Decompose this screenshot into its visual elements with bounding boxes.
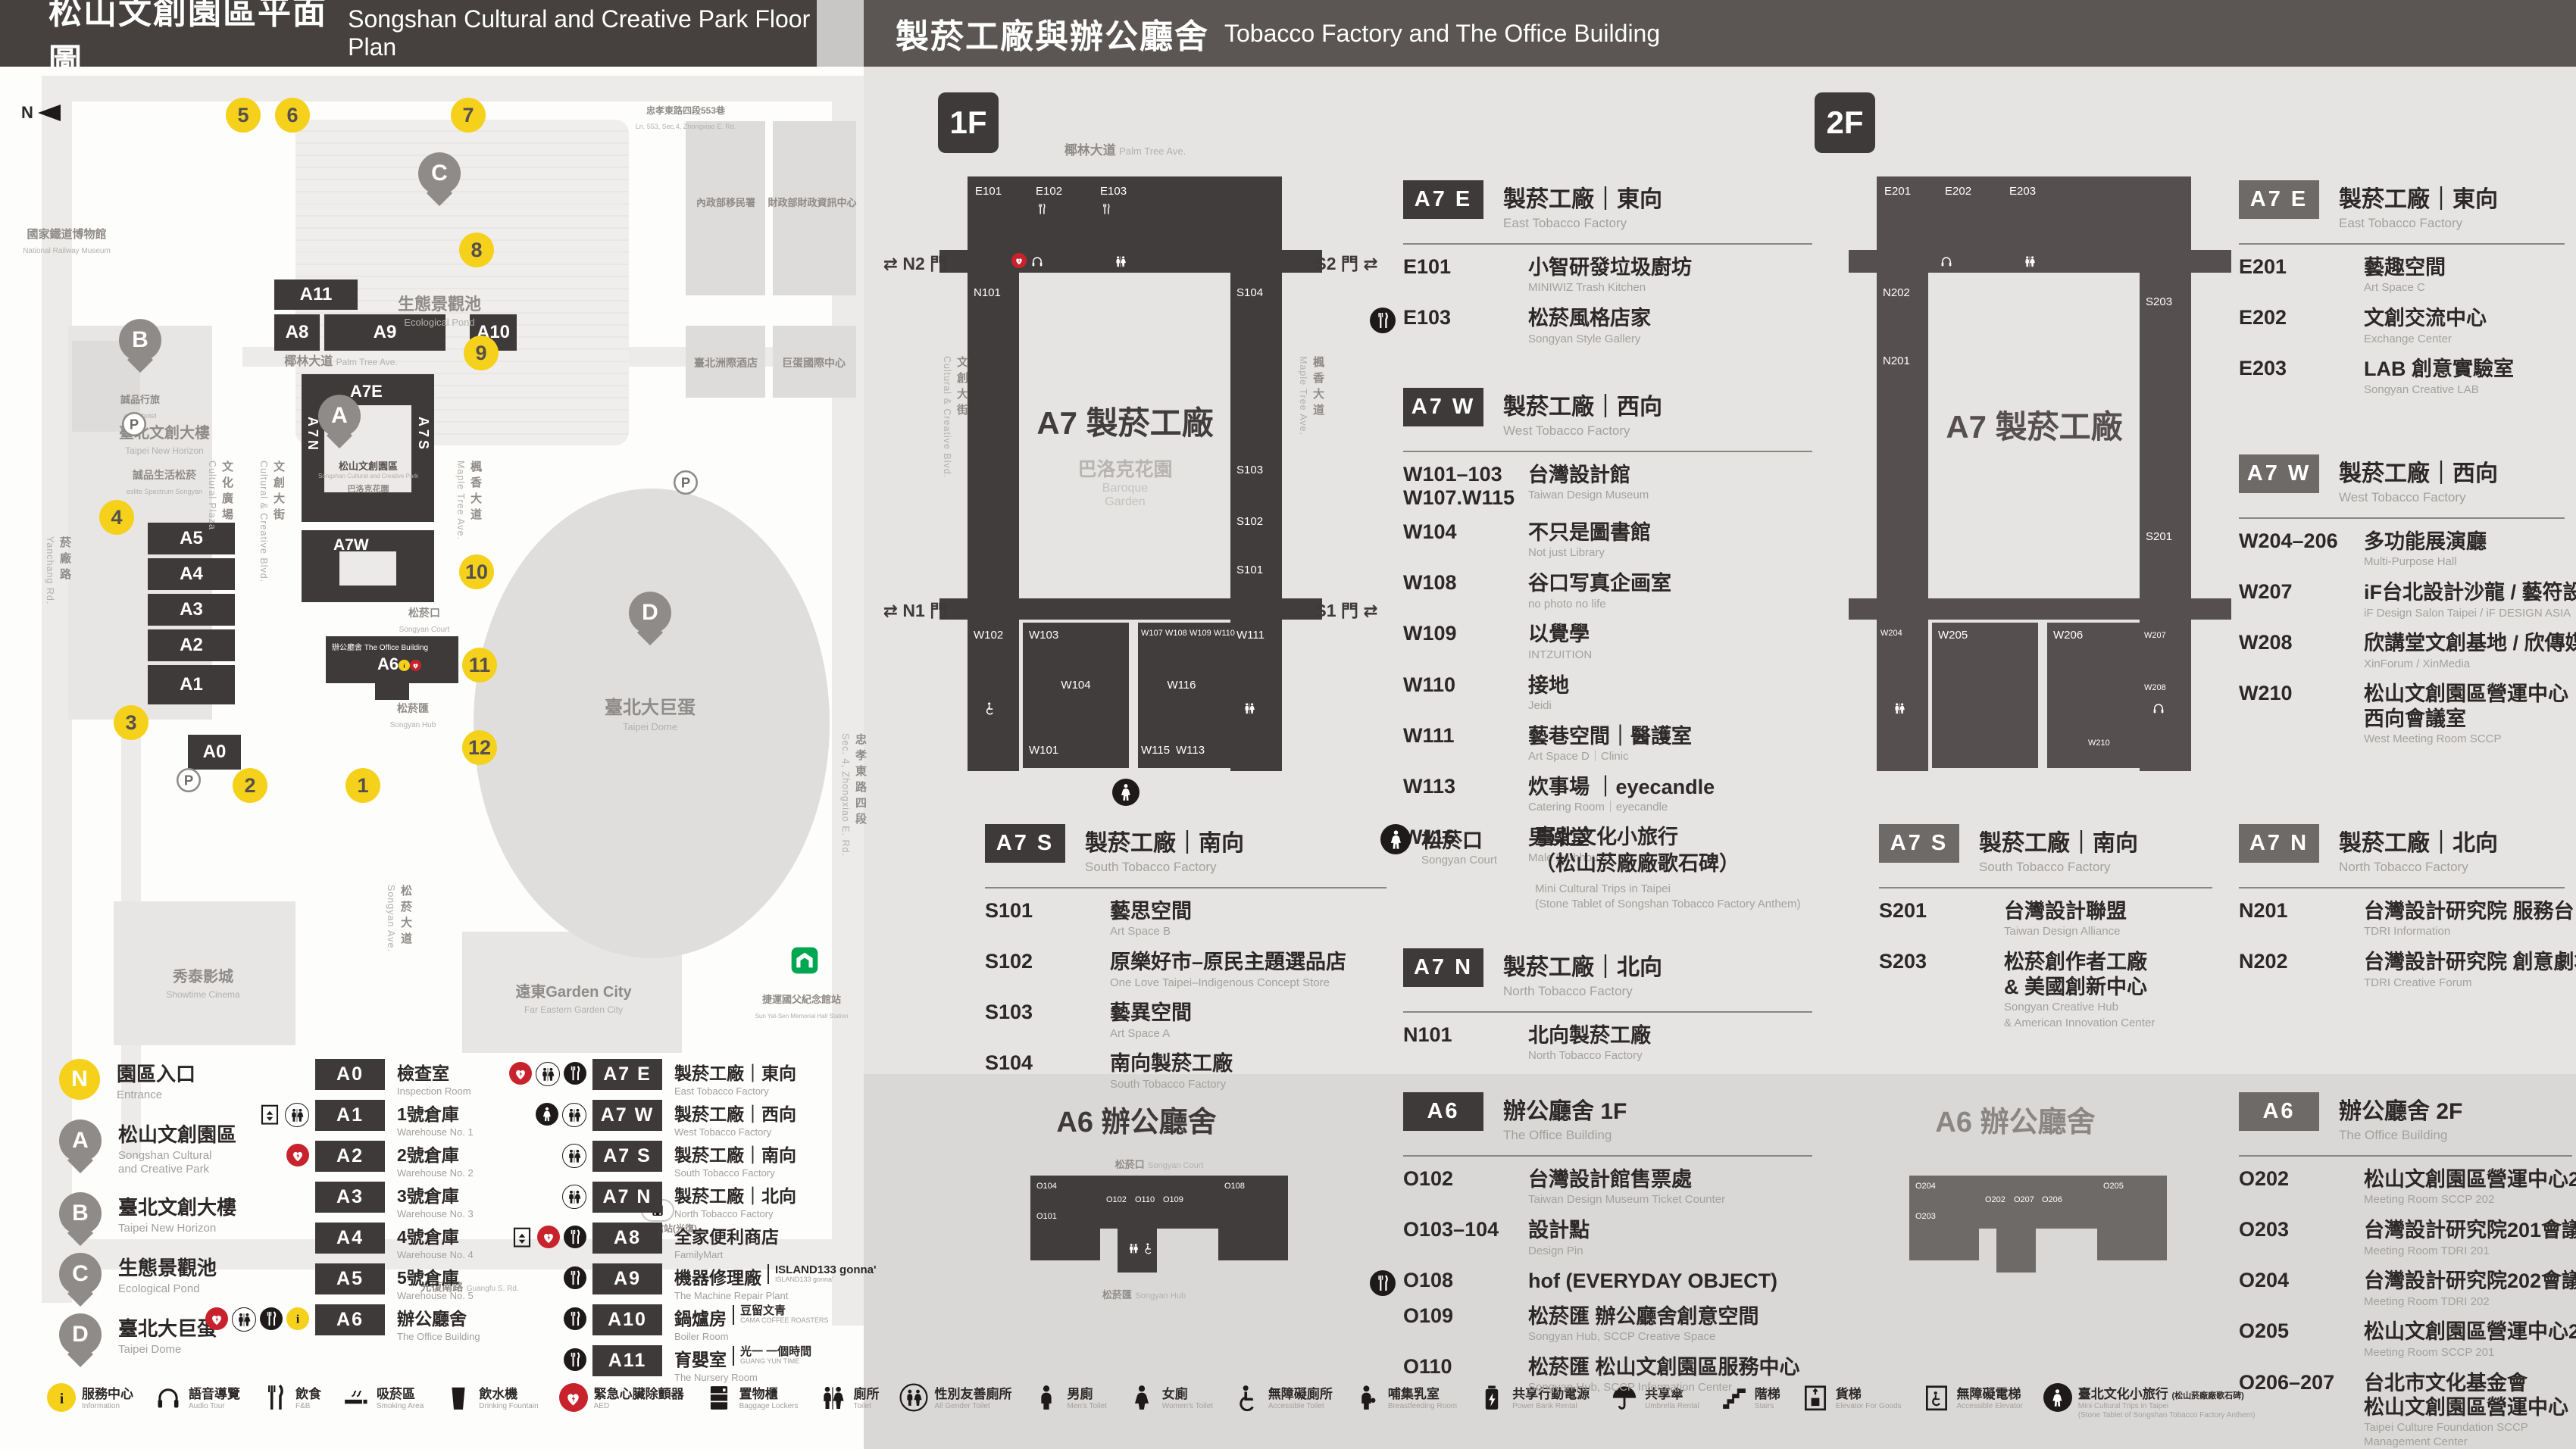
room-code: S201 <box>1879 899 2004 923</box>
plan-room-W110: W110 <box>1214 629 1235 638</box>
directory-row-W104: W104不只是圖書館Not just Library <box>1403 520 1812 561</box>
facility-text: 貨梯Elevator For Goods <box>1836 1383 1902 1411</box>
directory-row-N101: N101北向製菸工廠North Tobacco Factory <box>1403 1023 1812 1063</box>
legend-row-zh: 辦公廳舍 <box>397 1304 480 1330</box>
room-name-en: Songyan Hub, SCCP Information Center <box>1528 1381 1800 1395</box>
legend-row-text: 製菸工廠｜東向East Tobacco Factory <box>674 1059 796 1097</box>
culture-icon <box>536 1103 558 1126</box>
room-name: 多功能展演廳Multi-Purpose Hall <box>2364 529 2487 570</box>
room-name-zh: iF台北設計沙龍 / 藝符設計 <box>2364 580 2576 604</box>
section-badge: A6 <box>2239 1092 2319 1131</box>
entrance-number-4[interactable]: 4 <box>99 500 134 535</box>
facility-accessible: 無障礙廁所Accessible Toilet <box>1233 1383 1333 1412</box>
facility-text: 無障礙廁所Accessible Toilet <box>1268 1383 1333 1411</box>
plan-room-W111: W111 <box>1236 629 1265 642</box>
north-label: N <box>21 103 33 123</box>
room-code: W113 <box>1403 775 1528 798</box>
facility-aed: 緊急心臟除顫器AED <box>559 1383 684 1412</box>
elevator-icon <box>258 1103 281 1126</box>
directory-row-W101–103: W101–103W107.W115台灣設計館Taiwan Design Muse… <box>1403 463 1812 510</box>
directory-row-W108: W108谷口写真企画室no photo no life <box>1403 571 1812 611</box>
legend-row-A10: A10鍋爐房豆留文青CAMA COFFEE ROASTERSBoiler Roo… <box>505 1304 829 1342</box>
room-code: O103–104 <box>1403 1218 1528 1241</box>
facility-icon-strip: i服務中心Information語音導覽Audio Tour飲食F&B吸菸區Sm… <box>47 1383 2255 1420</box>
section-header: A7 W製菸工廠｜西向West Tobacco Factory <box>2239 454 2565 505</box>
room-name-en: MINIWIZ Trash Kitchen <box>1528 281 1692 295</box>
section-divider <box>1403 243 1812 245</box>
entrance-number-12[interactable]: 12 <box>462 730 497 765</box>
room-name-zh: 台灣設計聯盟 <box>2004 899 2127 923</box>
legend-place-en: Entrance <box>117 1088 195 1102</box>
room-name: 松山文創園區營運中心201會議室Meeting Room SCCP 201 <box>2364 1319 2576 1360</box>
room-code: W101–103W107.W115 <box>1403 463 1528 510</box>
songyan-court-entry: 松菸口Songyan Court臺北文化小旅行（松山菸廠廠歌石碑）Mini Cu… <box>1380 824 1805 913</box>
section-titles: 製菸工廠｜南向South Tobacco Factory <box>1085 824 1244 875</box>
legend-row-icons <box>505 1307 586 1330</box>
room-code: O109 <box>1403 1304 1528 1328</box>
park-name-label: 松山文創園區Songshan Cultural and Creative Par… <box>318 461 418 495</box>
map-pin-A[interactable]: A <box>318 395 361 452</box>
plan-room-W206: W206 <box>2053 629 2083 642</box>
facility-en: Breastfeeding Room <box>1388 1402 1457 1411</box>
facility-text: 男廁Men's Toilet <box>1067 1383 1106 1411</box>
legend-badge: A11 <box>592 1345 662 1376</box>
room-name: 松菸匯 辦公廳舍創意空間Songyan Hub, SCCP Creative S… <box>1528 1304 1759 1344</box>
legend-row-zh: 4號倉庫 <box>397 1223 474 1248</box>
room-name-en: Meeting Room TDRI 202 <box>2364 1295 2576 1310</box>
left-title-en: Songshan Cultural and Creative Park Floo… <box>348 5 817 61</box>
legend-row-text: 3號倉庫Warehouse No. 3 <box>397 1182 474 1219</box>
room-name-en: no photo no life <box>1528 598 1671 612</box>
room-name: 藝思空間Art Space B <box>1110 899 1192 939</box>
legend-row-en: Warehouse No. 1 <box>397 1126 474 1138</box>
legend-row-icons: i <box>227 1307 309 1332</box>
room-name-en: Exchange Center <box>2364 333 2487 347</box>
entrance-number-8[interactable]: 8 <box>459 233 494 267</box>
plan-room-W108: W108 <box>1165 629 1187 638</box>
legend-row-text: 4號倉庫Warehouse No. 4 <box>397 1223 474 1260</box>
directory-row-N202: N202台灣設計研究院 創意劇場TDRI Creative Forum <box>2239 950 2565 990</box>
floor-1f-badge: 1F <box>938 92 999 153</box>
room-code: O108 <box>1403 1269 1528 1292</box>
room-name-zh: 谷口写真企画室 <box>1528 571 1671 595</box>
fnb-icon <box>260 1307 283 1330</box>
facility-en: Men's Toilet <box>1067 1402 1106 1411</box>
facility-en: Drinking Fountain <box>479 1402 538 1411</box>
legend-row-en: Warehouse No. 5 <box>397 1290 474 1301</box>
directory-section-A7W: A7 W製菸工廠｜西向West Tobacco FactoryW204–206多… <box>2239 454 2565 747</box>
gate-S1 門[interactable]: S1 門 ⇄ <box>1315 596 1377 622</box>
a6-plan-room-O109: O109 <box>1163 1195 1183 1204</box>
entrance-number-1[interactable]: 1 <box>345 768 380 803</box>
facility-text: 服務中心Information <box>82 1383 133 1411</box>
legend-place-text: 松山文創園區Songshan Culturaland Creative Park <box>118 1120 236 1176</box>
legend-badge: A3 <box>315 1182 385 1213</box>
culture-icon <box>2043 1383 2072 1412</box>
audio-icon <box>2152 701 2165 715</box>
allgender-icon <box>899 1383 928 1412</box>
directory-row-S103: S103藝異空間Art Space A <box>985 1001 1386 1041</box>
right-title-en: Tobacco Factory and The Office Building <box>1224 20 1660 48</box>
a6-plan-title: A6 辦公廳舍 <box>1935 1098 2095 1140</box>
room-name-en: Taiwan Design Museum Ticket Counter <box>1528 1193 1725 1207</box>
facility-text: 緊急心臟除顫器AED <box>594 1383 684 1411</box>
a6-plan-stem <box>1996 1229 2036 1273</box>
facility-en: Power Bank Rental <box>1512 1402 1590 1411</box>
toilet-icon <box>562 1185 586 1209</box>
room-name-zh: 小智研發垃圾廚坊 <box>1528 255 1692 279</box>
entrance-number-7[interactable]: 7 <box>451 98 486 133</box>
room-code: O206–207 <box>2239 1371 2364 1394</box>
map-label: 松菸口Songyan Court <box>399 606 450 636</box>
map-label: 松菸匯Songyan Hub <box>390 701 436 732</box>
room-code: O203 <box>2239 1218 2364 1241</box>
plan-bottom-left-cell <box>968 620 1019 771</box>
section-title-en: The Office Building <box>1503 1128 1627 1143</box>
facility-en: Accessible Toilet <box>1268 1402 1333 1411</box>
facility-text: 吸菸區Smoking Area <box>377 1383 424 1411</box>
entrance-number-6[interactable]: 6 <box>275 98 310 133</box>
legend-row-A7N: A7 N製菸工廠｜北向North Tobacco Factory <box>505 1182 796 1219</box>
room-name: 台灣設計聯盟Taiwan Design Alliance <box>2004 899 2127 939</box>
legend-row-en: West Tobacco Factory <box>674 1126 796 1138</box>
audio-icon <box>154 1383 183 1412</box>
directory-row-W208: W208欣講堂文創基地 / 欣傳媒XinForum / XinMedia <box>2239 631 2565 671</box>
section-title-en: South Tobacco Factory <box>1979 860 2138 875</box>
legend-row-icons <box>505 1062 586 1086</box>
legend-row-zh: 機器修理廠ISLAND133 gonna'ISLAND133 gonna' <box>674 1263 877 1289</box>
section-badge: A7 S <box>1879 824 1959 863</box>
legend-place-D: D臺北大巨蛋Taipei Dome <box>59 1313 217 1368</box>
room-name-en: West Meeting Room SCCP <box>2364 732 2568 747</box>
legend-row-icons <box>227 1103 309 1127</box>
plan-street-right: 楓香大道Maple Tree Ave. <box>1297 356 1326 436</box>
entrance-number-2[interactable]: 2 <box>233 768 267 803</box>
room-name-zh: 多功能展演廳 <box>2364 529 2487 554</box>
fnb1 <box>1036 203 1048 219</box>
plan-room-N201: N201 <box>1883 354 1910 367</box>
room-name-zh: 台灣設計館 <box>1528 463 1649 487</box>
a6-info-icon: i <box>399 660 410 671</box>
plan-center-label: A7 製菸工廠巴洛克花園BaroqueGarden <box>1036 398 1213 509</box>
room-name: 松菸匯 松山文創園區服務中心Songyan Hub, SCCP Informat… <box>1528 1355 1800 1395</box>
room-name-zh: 以覺學 <box>1528 622 1592 646</box>
section-badge: A7 W <box>2239 454 2319 493</box>
room-name-zh: 藝巷空間｜醫護室 <box>1528 724 1692 748</box>
plan-right-band <box>2140 273 2191 598</box>
room-name-en: Songyan Creative LAB <box>2364 383 2514 398</box>
facility-zh: 語音導覽 <box>189 1383 240 1402</box>
section-badge: A7 E <box>1403 180 1483 219</box>
a6-aed-icon <box>410 660 421 671</box>
svg-text:P: P <box>130 417 139 433</box>
map-label: 財政部財政資訊中心 <box>767 195 856 211</box>
directory-row-S101: S101藝思空間Art Space B <box>985 899 1386 939</box>
directory-row-O203: O203台灣設計研究院201會議室Meeting Room TDRI 201 <box>2239 1218 2572 1258</box>
breastfeeding-icon <box>1353 1383 1382 1412</box>
a6-plan-room-O110: O110 <box>1135 1195 1155 1204</box>
legend-row-en: Boiler Room <box>674 1331 829 1342</box>
legend-badge: A4 <box>315 1223 385 1254</box>
room-name-en: One Love Taipei–Indigenous Concept Store <box>1110 976 1346 991</box>
facility-text: 置物櫃Baggage Lockers <box>739 1383 799 1411</box>
section-header: A7 N製菸工廠｜北向North Tobacco Factory <box>1403 948 1812 999</box>
map-pin-D[interactable]: D <box>629 592 671 649</box>
room-name-en: Taiwan Design Alliance <box>2004 925 2127 939</box>
legend-row-en: FamilyMart <box>674 1249 779 1260</box>
facility-locker: 置物櫃Baggage Lockers <box>705 1383 799 1412</box>
entrance-badge: N <box>59 1059 100 1100</box>
room-name-zh: 炊事場 ｜eyecandle <box>1528 775 1715 799</box>
room-code: E103 <box>1403 306 1528 329</box>
legend-place-text: 生態景觀池Ecological Pond <box>118 1253 217 1296</box>
room-name: 松山文創園區營運中心西向會議室West Meeting Room SCCP <box>2364 682 2568 747</box>
plan-icon <box>983 701 997 719</box>
map-block-A11[interactable]: A11 <box>274 279 358 310</box>
directory-row-O205: O205松山文創園區營運中心201會議室Meeting Room SCCP 20… <box>2239 1319 2572 1360</box>
section-title-en: East Tobacco Factory <box>2339 216 2498 231</box>
a7w-courtyard <box>339 551 396 586</box>
legend-place-text: 臺北大巨蛋Taipei Dome <box>118 1313 217 1357</box>
legend-place-text: 園區入口Entrance <box>117 1059 195 1102</box>
plan-room-S102: S102 <box>1236 515 1263 528</box>
entrance-number-3[interactable]: 3 <box>114 705 148 740</box>
a7w-map-label: A7W <box>333 536 369 554</box>
legend-row-A4: A44號倉庫Warehouse No. 4 <box>227 1223 474 1260</box>
a6-plan-room-O202: O202 <box>1985 1195 2005 1204</box>
legend-pin-A: A <box>59 1120 102 1174</box>
room-name: iF台北設計沙龍 / 藝符設計iF Design Salon Taipei / … <box>2364 580 2576 620</box>
room-name-zh: 藝思空間 <box>1110 899 1192 923</box>
room-name: 文創交流中心Exchange Center <box>2364 306 2487 346</box>
facility-en: Information <box>82 1402 133 1411</box>
room-code: W109 <box>1403 622 1528 645</box>
toilet-icon <box>562 1103 586 1127</box>
legend-place-zh: 臺北大巨蛋 <box>118 1313 217 1341</box>
plan-bottom-left-cell <box>1877 620 1928 771</box>
legend-row-A8: A8全家便利商店FamilyMart <box>505 1223 779 1260</box>
section-divider <box>2239 1155 2572 1157</box>
facility-zh: 服務中心 <box>82 1383 133 1402</box>
a6-plan-room-O205: O205 <box>2103 1182 2124 1191</box>
room-name-en: Songyan Creative Hub <box>2004 1001 2155 1015</box>
facility-text: 性別友善廁所All Gender Toilet <box>934 1383 1011 1411</box>
section-title-en: West Tobacco Factory <box>2339 490 2498 505</box>
section-title-zh: 製菸工廠｜西向 <box>1503 388 1662 421</box>
gate-S2 門[interactable]: S2 門 ⇄ <box>1315 249 1377 275</box>
section-title-en: East Tobacco Factory <box>1503 216 1662 231</box>
elevator-icon <box>511 1226 533 1248</box>
room-code: W108 <box>1403 571 1528 595</box>
legend-place-A: A松山文創園區Songshan Culturaland Creative Par… <box>59 1120 236 1176</box>
floor-2f-badge: 2F <box>1815 92 1875 153</box>
plan-left-band <box>968 273 1019 598</box>
accessible-icon <box>1143 1242 1155 1254</box>
legend-row-zh: 鍋爐房豆留文青CAMA COFFEE ROASTERS <box>674 1304 829 1330</box>
directory-section-A7W: A7 W製菸工廠｜西向West Tobacco FactoryW101–103W… <box>1403 388 1812 866</box>
a6-office-stem <box>375 683 409 700</box>
a6-plan-room-O207: O207 <box>2014 1195 2034 1204</box>
room-name-en: Jeidi <box>1528 699 1569 714</box>
directory-section-A7S: A7 S製菸工廠｜南向South Tobacco FactoryS101藝思空間… <box>985 824 1386 1092</box>
room-code: S203 <box>1879 950 2004 973</box>
directory-row-S102: S102原樂好市–原民主題選品店One Love Taipei–Indigeno… <box>985 950 1386 990</box>
legend-place-text: 臺北文創大樓Taipei New Horizon <box>118 1192 236 1235</box>
legend-row-icons <box>505 1226 586 1248</box>
legend-pin-D: D <box>59 1313 102 1368</box>
room-name-zh2: 松山文創園區營運中心 <box>2364 1395 2572 1419</box>
room-name-en: Songyan Hub, SCCP Creative Space <box>1528 1330 1759 1344</box>
map-street-label: 文創大街Cultural & Creative Blvd. <box>258 461 286 582</box>
aed-icon <box>509 1062 532 1085</box>
row-icon <box>1370 1270 1396 1296</box>
legend-row-text: 製菸工廠｜西向West Tobacco Factory <box>674 1100 796 1138</box>
directory-row-E201: E201藝趣空間Art Space C <box>2239 255 2565 295</box>
room-name: 藝異空間Art Space A <box>1110 1001 1192 1041</box>
room-name-en: Art Space B <box>1110 925 1192 939</box>
directory-section-A7N: A7 N製菸工廠｜北向North Tobacco FactoryN101北向製菸… <box>1403 948 1812 1063</box>
room-name: 不只是圖書館Not just Library <box>1528 520 1651 561</box>
women-icon <box>1127 1383 1156 1412</box>
room-code: S101 <box>985 899 1110 923</box>
parking-icon: P <box>673 470 699 495</box>
fnb-icon <box>564 1307 586 1330</box>
room-name: 松菸風格店家Songyan Style Gallery <box>1528 306 1651 346</box>
gate-N2 門[interactable]: ⇄ N2 門 <box>883 249 947 275</box>
legend-row-text: 製菸工廠｜北向North Tobacco Factory <box>674 1182 796 1219</box>
room-name-zh: 松山文創園區營運中心201會議室 <box>2364 1319 2576 1344</box>
legend-brand: 光一 一個時間GUANG YUN TIME <box>733 1346 811 1366</box>
facility-en: Mini Cultural Trips in Taipei <box>2078 1402 2256 1411</box>
map-street-label: 菸廠路Yanchang Rd. <box>44 536 73 604</box>
legend-row-text: 鍋爐房豆留文青CAMA COFFEE ROASTERSBoiler Room <box>674 1304 829 1342</box>
legend-row-A7E: A7 E製菸工廠｜東向East Tobacco Factory <box>505 1059 796 1097</box>
legend-row-zh: 2號倉庫 <box>397 1141 474 1166</box>
legend-row-text: 檢查室Inspection Room <box>397 1059 471 1097</box>
legend-badge: A5 <box>315 1263 385 1294</box>
map-pin-C[interactable]: C <box>418 152 461 210</box>
section-titles: 製菸工廠｜南向South Tobacco Factory <box>1979 824 2138 875</box>
facility-en: Elevator For Goods <box>1836 1402 1902 1411</box>
facility-acclift: 無障礙電梯Accessible Elevator <box>1922 1383 2023 1412</box>
facility-men: 男廁Men's Toilet <box>1032 1383 1106 1412</box>
section-header: A7 E製菸工廠｜東向East Tobacco Factory <box>1403 180 1812 231</box>
plan-left-band <box>1877 273 1928 598</box>
legend-place-en: Taipei Dome <box>118 1343 217 1357</box>
plan-room-W205: W205 <box>1938 629 1968 642</box>
room-code: E201 <box>2239 255 2364 279</box>
room-name: 松菸創作者工廠& 美國創新中心Songyan Creative Hub& Ame… <box>2004 950 2155 1030</box>
directory-row-E202: E202文創交流中心Exchange Center <box>2239 306 2565 346</box>
directory-row-W109: W109以覺學INTZUITION <box>1403 622 1812 662</box>
facility-text: 飲食F&B <box>295 1383 321 1411</box>
facility-en: Audio Tour <box>189 1402 240 1411</box>
room-name-en: TDRI Information <box>2364 925 2574 939</box>
map-pin-B[interactable]: B <box>119 319 161 376</box>
legend-row-zh: 製菸工廠｜東向 <box>674 1059 796 1085</box>
legend-row-text: 育嬰室光一 一個時間GUANG YUN TIMEThe Nursery Room <box>674 1345 811 1383</box>
plan-room-W207: W207 <box>2144 631 2166 640</box>
entrance-number-11[interactable]: 11 <box>462 648 497 682</box>
room-name-en: Meeting Room TDRI 201 <box>2364 1244 2576 1259</box>
gate-N1 門[interactable]: ⇄ N1 門 <box>883 596 947 622</box>
room-name: 台北市文化基金會松山文創園區營運中心Taipei Culture Foundat… <box>2364 1371 2572 1449</box>
fnb-icon <box>564 1226 586 1248</box>
parking: P <box>176 767 202 797</box>
map-block-A3[interactable]: A3 <box>148 594 235 626</box>
a6-plan-room-O104: O104 <box>1036 1182 1057 1191</box>
room-name: 小智研發垃圾廚坊MINIWIZ Trash Kitchen <box>1528 255 1692 295</box>
room-name-zh: 藝趣空間 <box>2364 255 2446 279</box>
directory-row-W113: W113炊事場 ｜eyecandleCatering Room｜eyecandl… <box>1403 775 1812 815</box>
room-name-zh: 南向製菸工廠 <box>1110 1051 1233 1076</box>
map-label: 秀泰影城Showtime Cinema <box>166 968 239 1002</box>
map-block-A0[interactable]: A0 <box>188 735 241 770</box>
smoking-icon <box>342 1383 370 1412</box>
room-name-zh: 台灣設計研究院 創意劇場 <box>2364 950 2576 974</box>
room-name-en: Art Space D｜Clinic <box>1528 750 1692 764</box>
directory-row-O108: O108hof (EVERYDAY OBJECT) <box>1403 1269 1812 1293</box>
aed-icon <box>559 1383 588 1412</box>
map-street-label: 文化廣場Cultural Plaza <box>206 461 235 530</box>
section-header: A7 W製菸工廠｜西向West Tobacco Factory <box>1403 388 1812 439</box>
map-block-A8[interactable]: A8 <box>274 314 320 351</box>
directory-row-W207: W207iF台北設計沙龍 / 藝符設計iF Design Salon Taipe… <box>2239 580 2565 620</box>
plan-room-W210: W210 <box>2088 739 2110 748</box>
room-code: W207 <box>2239 580 2364 604</box>
section-divider <box>2239 517 2565 519</box>
facility-en: Umbrella Rental <box>1645 1402 1699 1411</box>
room-name-zh: hof (EVERYDAY OBJECT) <box>1528 1269 1777 1293</box>
toilet-icon <box>1893 701 1906 715</box>
facility-zh: 臺北文化小旅行 (松山菸廠廠歌石碑) <box>2078 1383 2256 1402</box>
legend-badge: A7 W <box>592 1100 662 1131</box>
facility-zh: 男廁 <box>1067 1383 1106 1402</box>
a6-hub-label: 松菸匯 Songyan Hub <box>1102 1288 1186 1303</box>
plan-street-left: 文創大街Cultural & Creative Blvd. <box>941 356 970 478</box>
entrance-number-9[interactable]: 9 <box>464 336 499 370</box>
toilet-icon <box>285 1103 309 1127</box>
room-name-zh2: 西向會議室 <box>2364 707 2568 731</box>
facility-audio: 語音導覽Audio Tour <box>154 1383 240 1412</box>
room-name: 台灣設計館售票處Taiwan Design Museum Ticket Coun… <box>1528 1167 1725 1207</box>
plan-room-E102: E102 <box>1036 185 1062 198</box>
room-name: LAB 創意實驗室Songyan Creative LAB <box>2364 357 2514 397</box>
map-block-A4[interactable]: A4 <box>148 558 235 590</box>
plan-room-E202: E202 <box>1945 185 1971 198</box>
entrance-number-10[interactable]: 10 <box>459 554 494 589</box>
legend-row-icons <box>227 1144 309 1166</box>
directory-row-W111: W111藝巷空間｜醫護室Art Space D｜Clinic <box>1403 724 1812 764</box>
room-name-en: Art Space A <box>1110 1027 1192 1041</box>
map-block-A2[interactable]: A2 <box>148 629 235 661</box>
water-icon <box>444 1383 473 1412</box>
directory-row-W110: W110接地Jeidi <box>1403 673 1812 714</box>
room-name: 接地Jeidi <box>1528 673 1569 714</box>
legend-row-A7S: A7 S製菸工廠｜南向South Tobacco Factory <box>505 1141 796 1179</box>
section-header: A7 E製菸工廠｜東向East Tobacco Factory <box>2239 180 2565 231</box>
entrance-number-5[interactable]: 5 <box>226 98 261 133</box>
facility-water: 飲水機Drinking Fountain <box>444 1383 538 1412</box>
room-code: O110 <box>1403 1355 1528 1379</box>
facility-toilet: 廁所Toilet <box>818 1383 879 1412</box>
toilet-icon <box>1127 1242 1140 1254</box>
map-block-A1[interactable]: A1 <box>148 665 235 704</box>
a6-plan-room-O206: O206 <box>2042 1195 2062 1204</box>
facility-en: Smoking Area <box>377 1402 424 1411</box>
room-name-en: TDRI Creative Forum <box>2364 976 2576 991</box>
section-divider <box>1403 1011 1812 1013</box>
